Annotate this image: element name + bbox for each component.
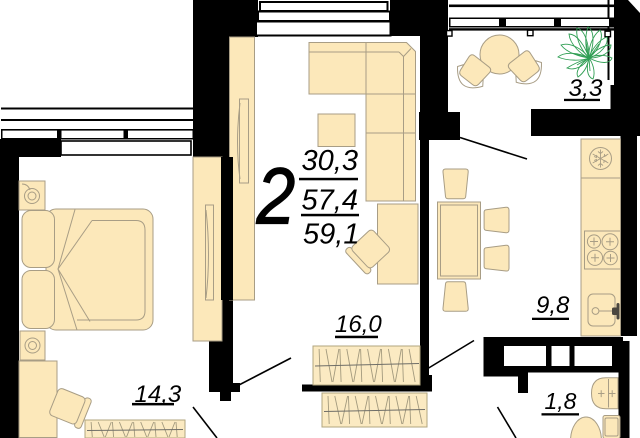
svg-text:30,3: 30,3 <box>302 145 358 177</box>
svg-text:16,0: 16,0 <box>335 311 382 338</box>
svg-text:9,8: 9,8 <box>536 292 570 319</box>
svg-text:3,3: 3,3 <box>569 75 603 102</box>
svg-text:57,4: 57,4 <box>302 185 358 217</box>
svg-text:1,8: 1,8 <box>545 388 577 414</box>
svg-text:59,1: 59,1 <box>303 219 359 251</box>
svg-text:2: 2 <box>256 151 296 241</box>
